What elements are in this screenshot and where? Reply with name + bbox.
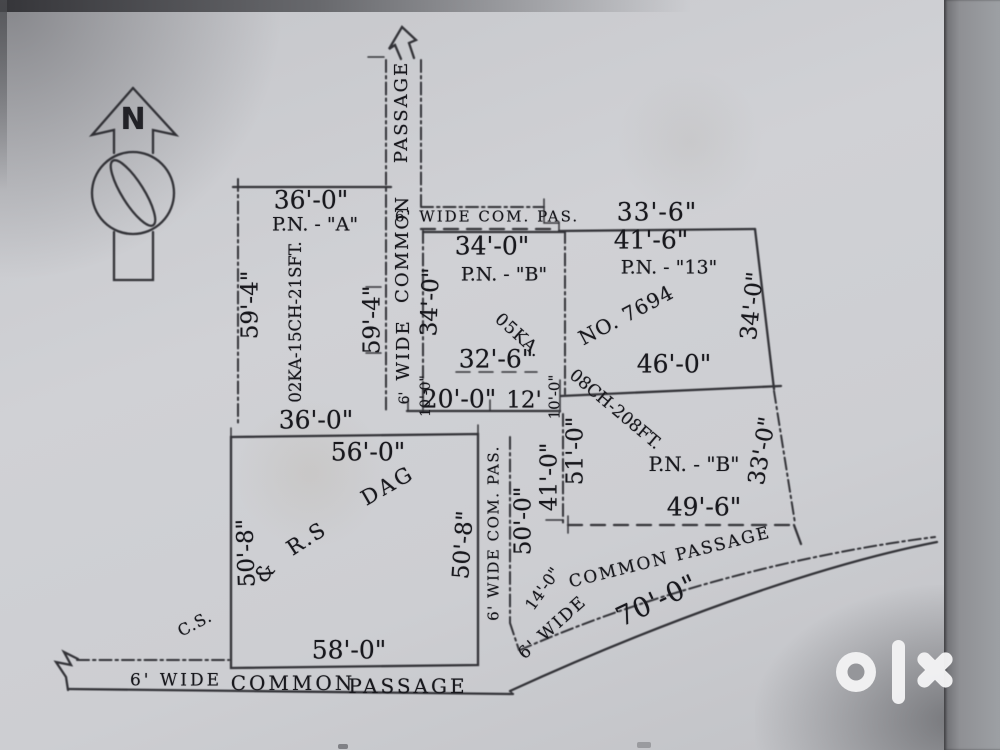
plot-a-area-note: 02KA-15CH-21SFT. bbox=[288, 241, 305, 402]
plot-c-top-dim: 56'-0" bbox=[331, 440, 406, 465]
plot-a-left-dim: 59'-4" bbox=[240, 271, 263, 340]
scan-speck bbox=[637, 742, 651, 748]
plot-b1-bottom-dim-2: 12' bbox=[506, 390, 542, 413]
plot-a-top-dim: 36'-0" bbox=[274, 188, 349, 213]
scan-speck bbox=[338, 744, 348, 749]
olx-x-icon bbox=[904, 639, 966, 701]
plot-b2-left-dim-outer: 41'-0" bbox=[539, 443, 562, 512]
plot-b1-side-dim-left: 10'-0" bbox=[419, 375, 433, 417]
olx-o-icon bbox=[836, 652, 876, 692]
plot-c-bottom-dim: 58'-0" bbox=[312, 638, 387, 663]
plot-b2-name: P.N. - "B" bbox=[649, 454, 740, 474]
plot-13-top-dim: 41'-6" bbox=[614, 228, 689, 253]
strip-wide-word: WIDE bbox=[395, 319, 413, 380]
plot-c-left-dim: 50'-8" bbox=[234, 518, 259, 587]
strip-passage-word: PASSAGE bbox=[393, 61, 411, 163]
dim-33-6: 33'-6" bbox=[617, 200, 698, 225]
plot-a-right-dim: 59'-4" bbox=[362, 286, 385, 355]
plot-13-name: P.N. - "13" bbox=[621, 259, 718, 278]
mid-passage-label: 6' WIDE COM. PAS. bbox=[487, 445, 502, 621]
break-symbol-icon bbox=[389, 27, 416, 59]
plot-13-bottom-dim: 46'-0" bbox=[637, 352, 712, 377]
olx-watermark-logo bbox=[820, 628, 970, 723]
olx-bar-icon bbox=[892, 640, 905, 704]
scanned-plot-plan: N PASSAGE COMMON WIDE 6' 6' WIDE COM. PA… bbox=[0, 0, 1000, 750]
break-symbol-icon bbox=[56, 652, 78, 690]
plot-b2-bottom-dim: 49'-6" bbox=[667, 495, 742, 520]
bottom-passage-width: 6' WIDE bbox=[130, 673, 222, 690]
plot-a-bottom-dim: 36'-0" bbox=[279, 408, 354, 433]
mid-passage-length: 50'-0" bbox=[513, 487, 536, 556]
plot-b1-name: P.N. - "B" bbox=[461, 266, 547, 285]
plot-b2-left-dim-inner: 51'-0" bbox=[565, 417, 588, 486]
plot-b1-left-dim: 34'-0" bbox=[418, 267, 443, 336]
plot-c-right-dim: 50'-8" bbox=[450, 510, 478, 580]
plot-b1-side-dim-right: 10'-0" bbox=[548, 375, 563, 420]
bottom-passage-passage: PASSAGE bbox=[348, 676, 467, 696]
plot-a-name: P.N. - "A" bbox=[272, 216, 358, 235]
plot-b1-mid-dim: 32'-6" bbox=[459, 347, 534, 372]
top-passage-label: 6' WIDE COM. PAS. bbox=[395, 210, 579, 225]
bottom-passage-common: COMMON bbox=[231, 673, 356, 693]
strip-width-note: 6' bbox=[398, 392, 412, 405]
north-letter: N bbox=[120, 105, 145, 135]
plot-b1-top-dim: 34'-0" bbox=[455, 234, 530, 259]
